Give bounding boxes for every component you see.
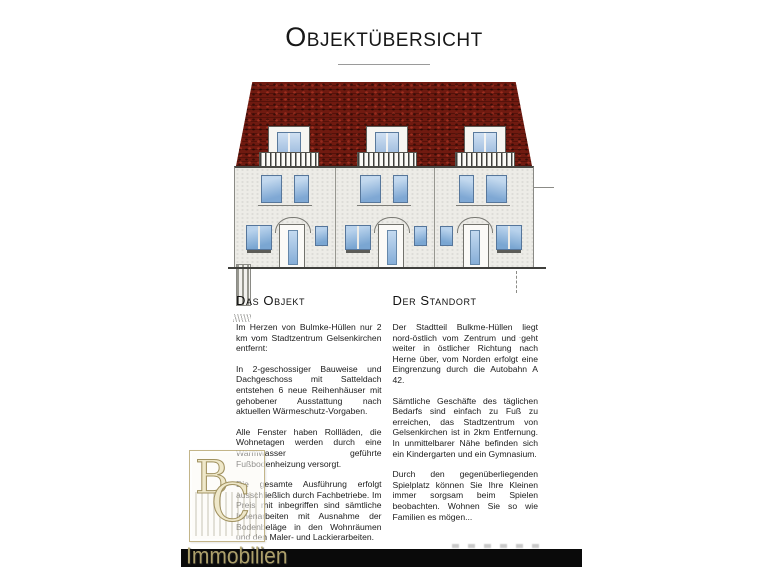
house-unit (334, 168, 434, 268)
ground-floor-window (496, 225, 522, 250)
window (459, 175, 474, 203)
paragraph: Durch den gegenüberliegenden Spielplatz … (393, 469, 539, 522)
door-glass (387, 230, 397, 265)
brochure-page: Objektübersicht (0, 0, 768, 567)
section-heading: Das Objekt (236, 293, 382, 308)
window (393, 175, 408, 203)
roof (236, 82, 532, 166)
logo-label: Immobilien (186, 544, 279, 567)
paragraph: Der Stadtteil Bulkme-Hüllen liegt nord-ö… (393, 322, 539, 386)
unit-divider (335, 168, 336, 267)
company-logo-watermark: B C Immobilien (189, 450, 279, 567)
entrance-door (279, 224, 305, 269)
unit-divider (434, 168, 435, 267)
window (486, 175, 507, 203)
narrow-window (414, 226, 427, 246)
house-unit (235, 168, 335, 268)
paragraph: Sämtliche Geschäfte des täglichen Bedarf… (393, 396, 539, 460)
door-glass (470, 230, 480, 265)
window (261, 175, 282, 203)
text-columns: Das Objekt Im Herzen von Bulmke-Hüllen n… (236, 293, 538, 553)
narrow-window (440, 226, 453, 246)
entrance-door (463, 224, 489, 269)
ground-line (228, 267, 546, 269)
paragraph: Im Herzen von Bulmke-Hüllen nur 2 km vom… (236, 322, 382, 354)
door-glass (288, 230, 298, 265)
upper-windows (360, 175, 408, 203)
window (294, 175, 309, 203)
monogram-letter-c: C (211, 478, 251, 530)
section-heading: Der Standort (393, 293, 539, 308)
ground-floor-window (345, 225, 371, 250)
building-elevation-drawing: - -- -- - (234, 80, 534, 272)
section-der-standort: Der Standort Der Stadtteil Bulkme-Hüllen… (393, 293, 539, 553)
paragraph: In 2-geschossiger Bauweise und Dachgesch… (236, 364, 382, 417)
window (360, 175, 381, 203)
narrow-window (315, 226, 328, 246)
logo-monogram-icon: B C (189, 450, 265, 542)
dimension-line (534, 187, 554, 188)
page-title: Objektübersicht (0, 22, 768, 53)
title-divider (338, 64, 430, 65)
faint-print-marks (452, 544, 547, 548)
ground-floor-window (246, 225, 272, 250)
entrance-door (378, 224, 404, 269)
facade: - -- -- - (234, 166, 534, 268)
upper-windows (459, 175, 507, 203)
house-unit (433, 168, 533, 268)
upper-windows (261, 175, 309, 203)
dimension-dash (516, 271, 517, 293)
